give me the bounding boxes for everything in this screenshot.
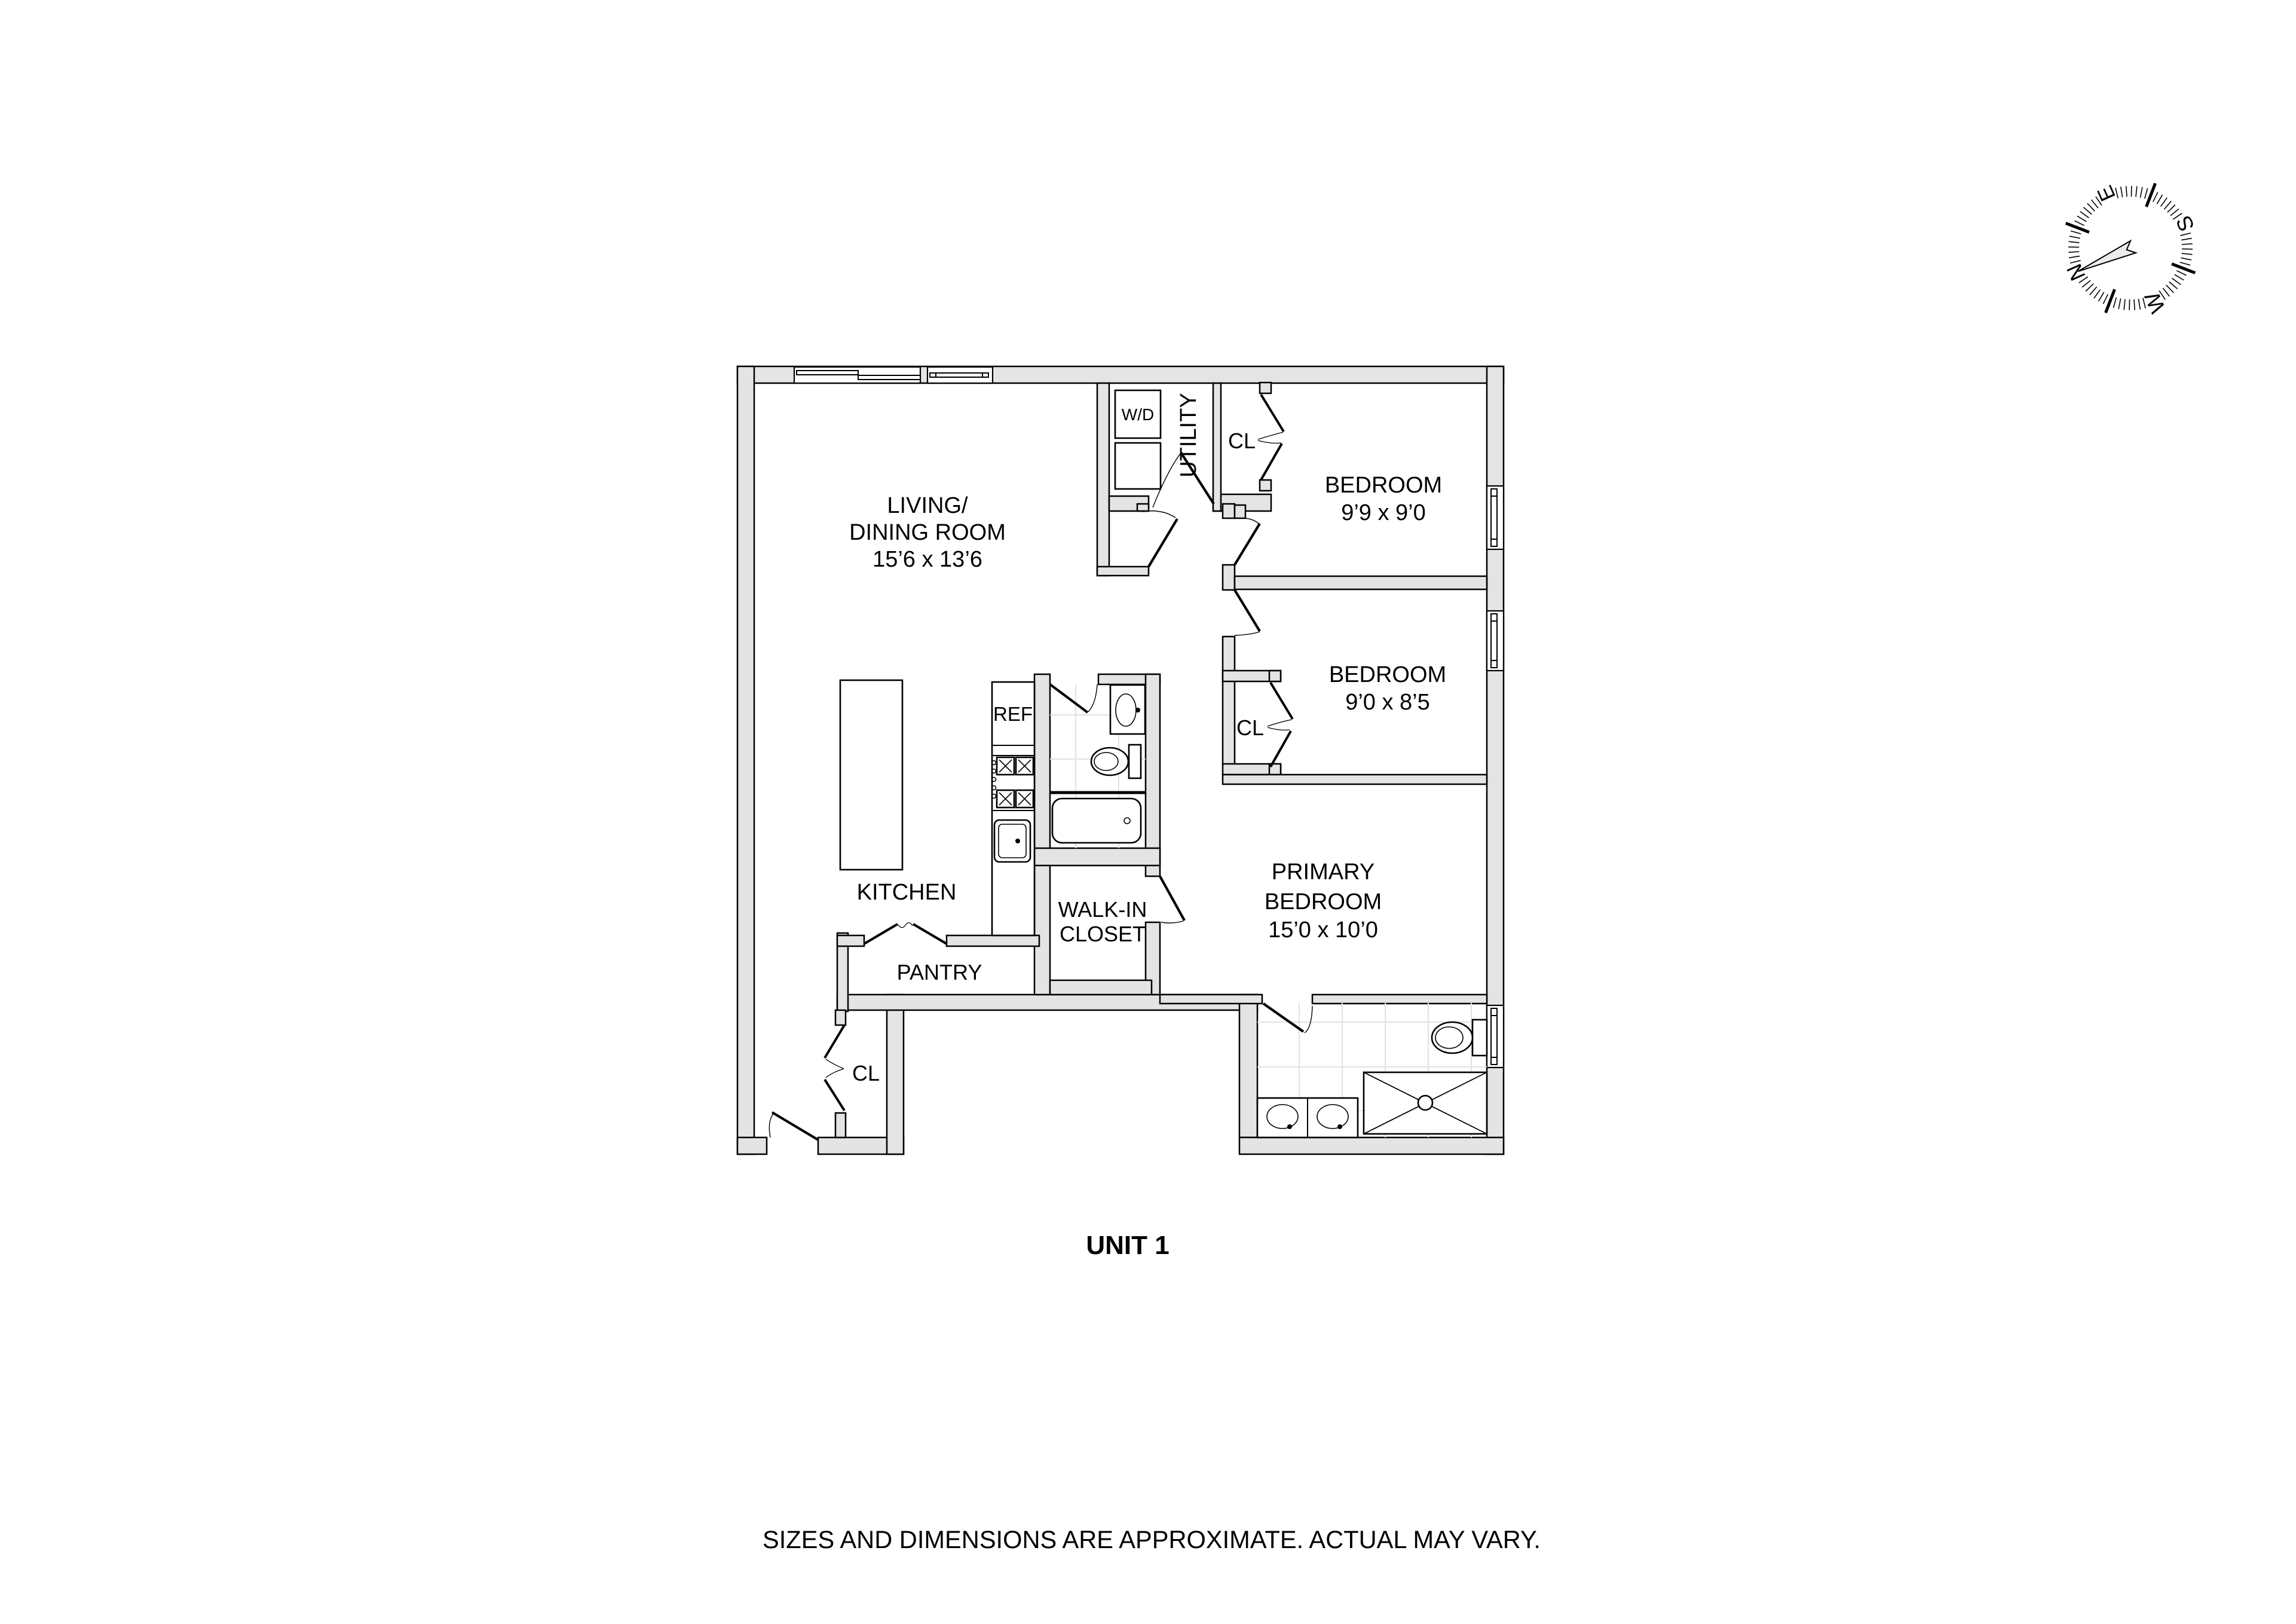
- compass-ticks: [2050, 167, 2211, 329]
- walk-in-closet-door: [1160, 876, 1184, 923]
- compass-letter-s: S: [2171, 212, 2199, 236]
- window-living-2: [927, 367, 993, 383]
- compass-tick: [2115, 298, 2124, 309]
- primary-bedroom-dims: 15’0 x 10’0: [1268, 917, 1378, 943]
- floor-plan-canvas: LIVING/ DINING ROOM 15’6 x 13’6 BEDROOM …: [0, 0, 2296, 1624]
- wall-cl2-jamb-top: [1269, 671, 1281, 681]
- compass-letter-n: N: [2062, 260, 2090, 284]
- compass-letter-e: E: [2092, 182, 2120, 205]
- wall-foyercloset-bottom: [1097, 567, 1149, 576]
- primary-bedroom-label-line1: PRIMARY: [1272, 860, 1374, 885]
- bedroom1-closet-bifold: [1258, 394, 1284, 480]
- washer-dryer-label: W/D: [1122, 405, 1154, 424]
- compass-tick: [2181, 254, 2191, 264]
- wall-hall-b: [1223, 565, 1235, 590]
- foyer-closet-door: [1143, 511, 1177, 567]
- bathtub: [1050, 793, 1146, 843]
- primary-bath-toilet: [1432, 1020, 1487, 1056]
- compass-tick: [2098, 289, 2121, 313]
- kitchen-label: KITCHEN: [857, 880, 957, 905]
- compass-tick: [2066, 216, 2089, 239]
- compass-tick: [2068, 248, 2079, 256]
- utility-label: UTILITY: [1176, 393, 1201, 477]
- floor-plan-page: LIVING/ DINING ROOM 15’6 x 13’6 BEDROOM …: [0, 0, 2296, 1624]
- bedroom1-door: [1235, 518, 1260, 565]
- bedroom1-dims: 9’9 x 9’0: [1341, 500, 1426, 525]
- double-vanity: [1257, 1098, 1358, 1137]
- compass-tick: [2068, 243, 2079, 251]
- bedroom2-closet-bifold: [1268, 683, 1293, 767]
- wall-walkin-bottom: [1050, 980, 1152, 995]
- closet-bedroom1-label: CL: [1228, 429, 1256, 453]
- closet-entry-label: CL: [852, 1061, 880, 1085]
- bedroom2-label: BEDROOM: [1329, 662, 1446, 687]
- compass-tick: [2069, 253, 2080, 260]
- wall-hall-stub: [1235, 505, 1245, 518]
- primary-bedroom-label-line2: BEDROOM: [1265, 889, 1382, 915]
- wall-bath-bottom: [1034, 848, 1160, 865]
- window-primary-bath: [1487, 1005, 1504, 1068]
- closet-bedroom2-label: CL: [1236, 715, 1264, 740]
- hall-bath-sink: [1110, 685, 1145, 734]
- compass-tick: [2130, 299, 2138, 310]
- bedroom2-door: [1235, 590, 1260, 635]
- window-bedroom2: [1487, 611, 1504, 671]
- compass-tick: [2182, 240, 2193, 248]
- wall-bath-right-a: [1146, 674, 1160, 876]
- walk-in-closet-label-line1: WALK-IN: [1058, 897, 1147, 922]
- compass-tick: [2070, 233, 2080, 242]
- pantry-label: PANTRY: [897, 960, 982, 984]
- wall-pbed-bottom-b: [1312, 995, 1487, 1004]
- wall-bottom-right: [1239, 1137, 1504, 1154]
- living-dining-label-line2: DINING ROOM: [849, 520, 1006, 545]
- wall-cl1-jamb-bottom: [1260, 480, 1271, 491]
- primary-bath-door: [1263, 1004, 1312, 1033]
- hall-bath-door: [1050, 684, 1097, 712]
- wall-bed1-bed2-divider: [1235, 576, 1487, 589]
- compass-tick: [2132, 186, 2141, 197]
- compass-tick: [2139, 183, 2162, 207]
- shower: [1364, 1072, 1487, 1134]
- wall-cl3-jamb-top: [835, 1010, 846, 1025]
- entry-door: [769, 1112, 818, 1140]
- wall-bottom-left-a: [737, 1137, 767, 1154]
- pantry-double-doors: [864, 923, 947, 944]
- wall-utility-right: [1213, 383, 1221, 511]
- compass-tick: [2081, 280, 2092, 287]
- living-dining-label-line1: LIVING/: [887, 493, 968, 518]
- compass-tick: [2120, 299, 2129, 310]
- compass-tick: [2182, 245, 2193, 253]
- compass-tick: [2127, 186, 2136, 197]
- compass-rose: N E S W: [2037, 158, 2224, 341]
- kitchen-sink: [994, 820, 1030, 862]
- hall-bath-toilet: [1091, 745, 1141, 778]
- walk-in-closet-label-line2: CLOSET: [1060, 922, 1146, 946]
- refrigerator-label: REF: [993, 703, 1033, 725]
- wall-left: [737, 366, 754, 1154]
- bedroom1-label: BEDROOM: [1325, 473, 1442, 498]
- window-living-1: [794, 367, 920, 383]
- compass-tick: [2069, 238, 2080, 247]
- wall-pbed-bottom-a: [1160, 995, 1262, 1004]
- entry-closet-bifold: [825, 1025, 844, 1111]
- compass-tick: [2182, 250, 2193, 259]
- compass-tick: [2169, 209, 2180, 216]
- living-dining-dims: 15’6 x 13’6: [873, 547, 982, 572]
- unit-title: UNIT 1: [1086, 1231, 1169, 1260]
- wall-pantry-top-left: [837, 935, 864, 946]
- window-bedroom1: [1487, 486, 1504, 549]
- kitchen-island: [840, 680, 902, 870]
- wall-pantry-top-right: [947, 935, 1039, 946]
- wall-hall-c: [1223, 637, 1235, 765]
- bedroom2-dims: 9’0 x 8’5: [1345, 690, 1430, 715]
- wall-foyer-left: [1097, 383, 1109, 576]
- compass-tick: [2172, 256, 2195, 280]
- wall-pbath-left: [1239, 995, 1257, 1137]
- disclaimer-text: SIZES AND DIMENSIONS ARE APPROXIMATE. AC…: [763, 1525, 1541, 1553]
- compass-tick: [2125, 299, 2133, 310]
- compass-tick: [2181, 236, 2192, 242]
- compass-tick: [2136, 187, 2146, 198]
- wall-foyercloset-jamb: [1137, 504, 1149, 511]
- compass-letter-w: W: [2139, 288, 2170, 317]
- wall-cl3-jamb-bottom: [835, 1113, 846, 1137]
- compass-tick: [2123, 186, 2130, 197]
- wall-bed2-primary-divider: [1223, 775, 1487, 784]
- wall-entrycol-right: [887, 995, 904, 1154]
- wall-cl1-jamb-top: [1260, 383, 1271, 393]
- wall-hall-a: [1223, 504, 1235, 518]
